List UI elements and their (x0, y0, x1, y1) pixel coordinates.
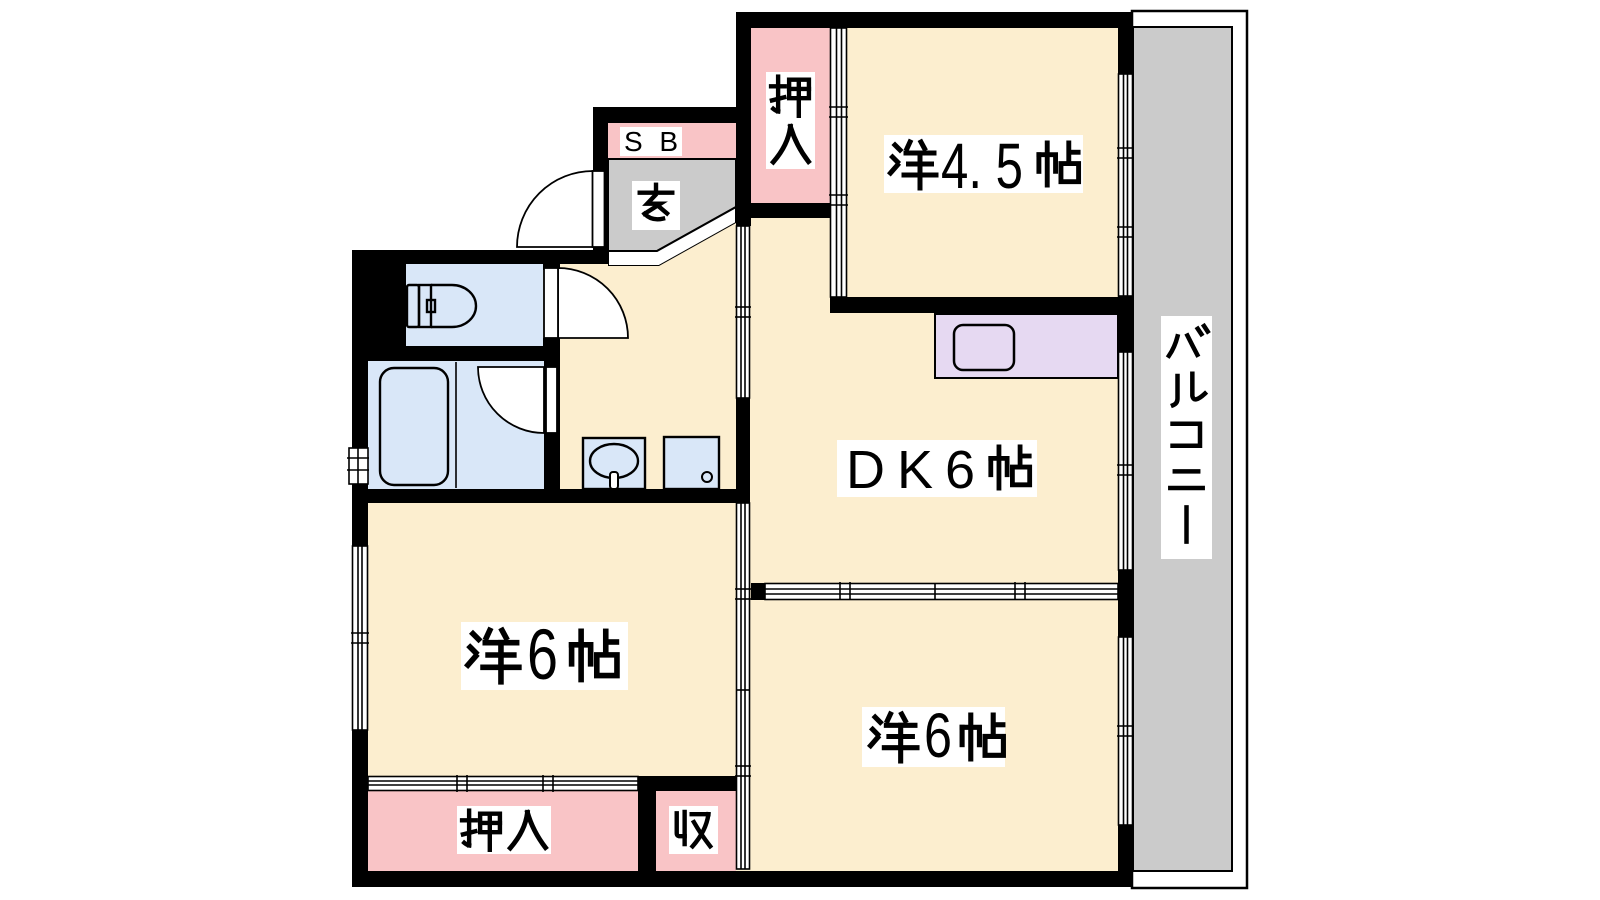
svg-text:DK6: DK6 (846, 440, 975, 500)
svg-text:4. 5: 4. 5 (941, 130, 1023, 202)
svg-text:6: 6 (527, 616, 558, 695)
svg-text:6: 6 (924, 701, 952, 771)
